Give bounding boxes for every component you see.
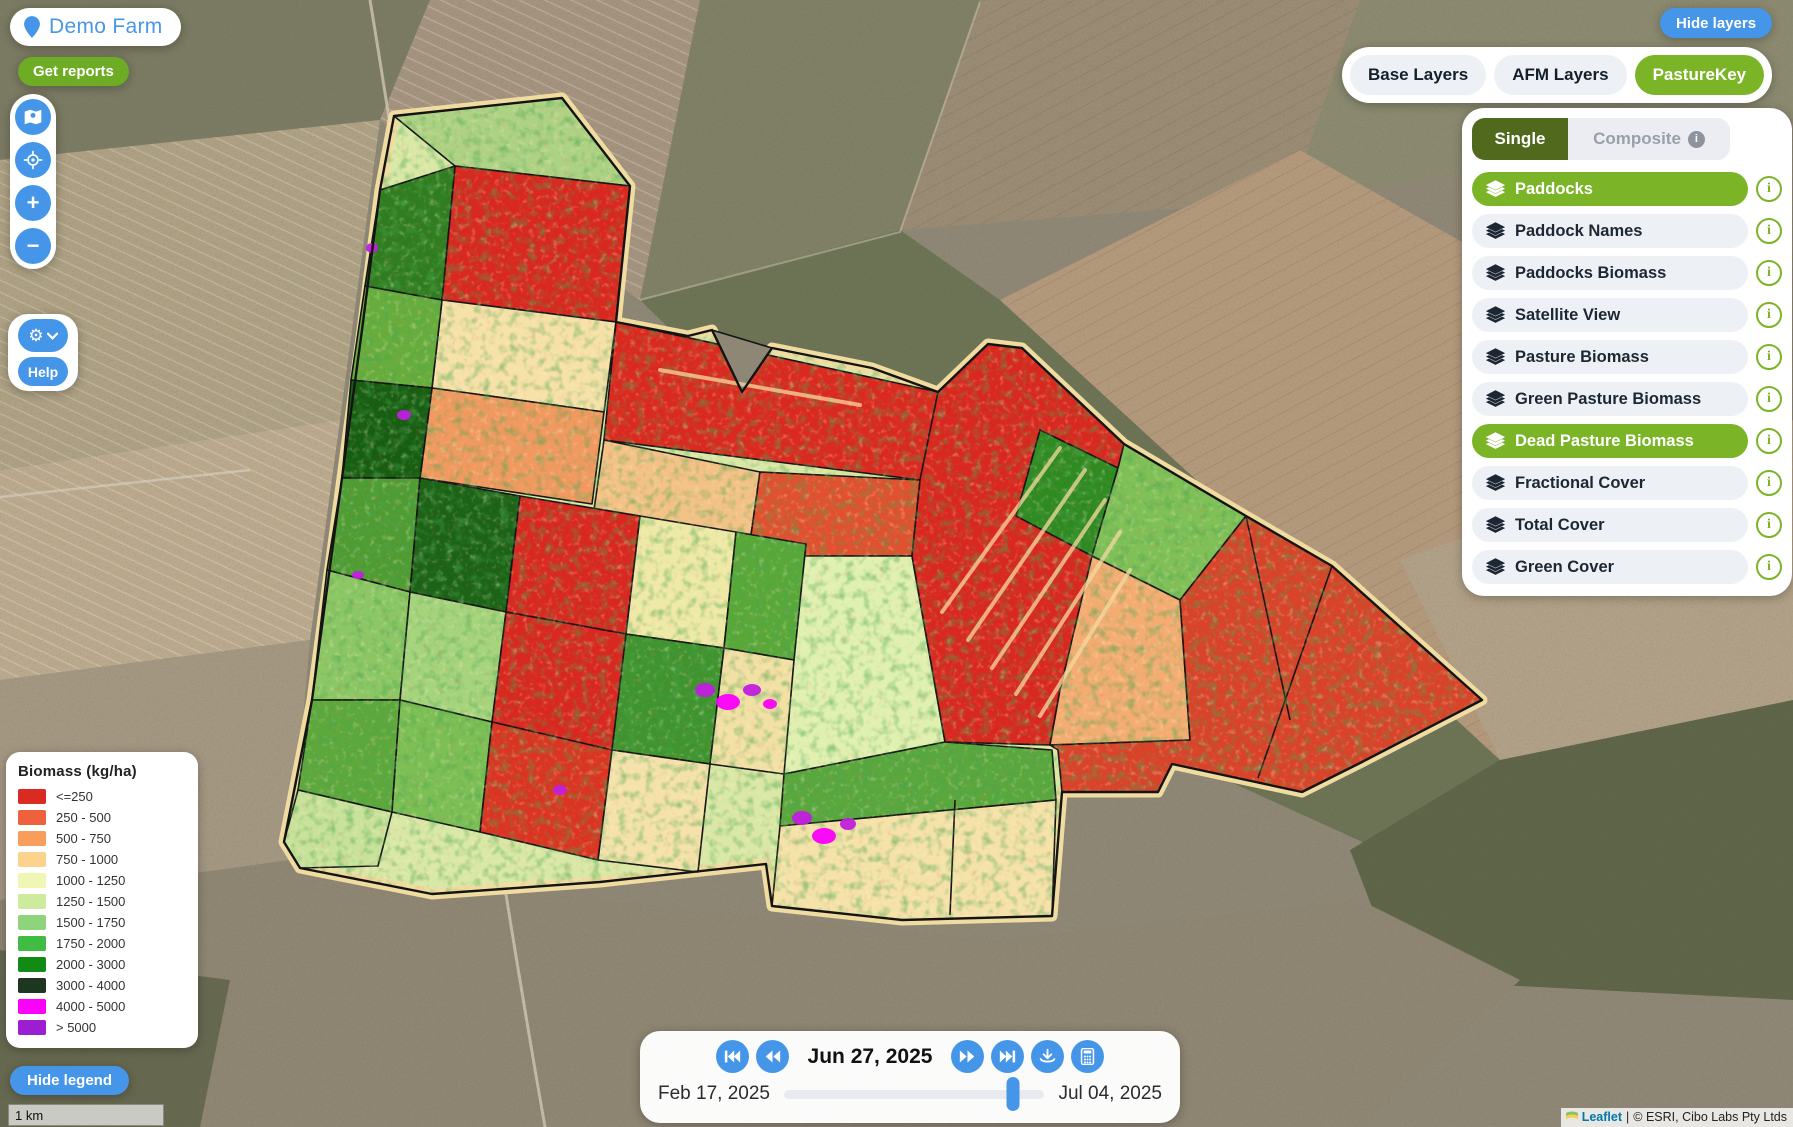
layer-tab[interactable]: PastureKey — [1635, 55, 1765, 95]
layers-icon — [1485, 180, 1506, 198]
farm-selector[interactable]: Demo Farm — [10, 8, 181, 46]
legend-row: 1500 - 1750 — [18, 912, 186, 933]
legend-label: 250 - 500 — [56, 810, 111, 825]
layer-row: Green Cover i — [1472, 550, 1782, 584]
layer-label: Total Cover — [1515, 516, 1605, 535]
map-icon — [23, 107, 43, 127]
legend-label: <=250 — [56, 789, 93, 804]
legend-label: 750 - 1000 — [56, 852, 118, 867]
date-slider-thumb[interactable] — [1007, 1077, 1020, 1111]
hide-legend-button[interactable]: Hide legend — [10, 1066, 129, 1095]
tab-label: AFM Layers — [1512, 65, 1608, 85]
leaflet-link[interactable]: Leaflet — [1582, 1110, 1622, 1124]
layer-row: Paddock Names i — [1472, 214, 1782, 248]
layer-item[interactable]: Paddocks Biomass — [1472, 256, 1748, 290]
chevron-down-icon — [47, 332, 58, 340]
step-forward-button[interactable] — [951, 1040, 984, 1073]
help-button[interactable]: Help — [18, 357, 68, 386]
timeline-controls: Jun 27, 2025 — [658, 1040, 1162, 1073]
crosshair-icon — [23, 150, 43, 170]
layer-info-icon[interactable]: i — [1756, 554, 1782, 580]
mode-single-label: Single — [1494, 129, 1545, 149]
legend-row: 4000 - 5000 — [18, 996, 186, 1017]
tab-label: PastureKey — [1653, 65, 1747, 85]
composite-info-icon[interactable]: i — [1688, 131, 1705, 148]
layers-icon — [1485, 516, 1506, 534]
layers-icon — [1485, 474, 1506, 492]
layers-icon — [1485, 432, 1506, 450]
layer-row: Total Cover i — [1472, 508, 1782, 542]
date-slider-track[interactable] — [784, 1090, 1044, 1099]
layer-item[interactable]: Fractional Cover — [1472, 466, 1748, 500]
legend-row: 3000 - 4000 — [18, 975, 186, 996]
legend-items: <=250 250 - 500 500 - 750 750 - 1000 — [18, 786, 186, 1038]
legend-label: 1000 - 1250 — [56, 873, 125, 888]
layer-info-icon[interactable]: i — [1756, 176, 1782, 202]
current-date: Jun 27, 2025 — [808, 1045, 933, 1069]
locate-button[interactable] — [15, 142, 51, 178]
legend-row: 1750 - 2000 — [18, 933, 186, 954]
layer-list: Paddocks i Paddock Names i — [1472, 172, 1782, 584]
legend-swatch — [18, 873, 46, 888]
layer-info-icon[interactable]: i — [1756, 386, 1782, 412]
layer-row: Satellite View i — [1472, 298, 1782, 332]
gear-icon: ⚙ — [28, 326, 43, 346]
mode-composite-label: Composite — [1593, 129, 1681, 149]
legend-swatch — [18, 1020, 46, 1035]
layer-info-icon[interactable]: i — [1756, 428, 1782, 454]
legend-swatch — [18, 999, 46, 1014]
layers-icon — [1485, 390, 1506, 408]
tab-label: Base Layers — [1368, 65, 1468, 85]
legend-label: 1750 - 2000 — [56, 936, 125, 951]
rewind-icon — [764, 1049, 781, 1064]
attribution-separator: | — [1626, 1110, 1629, 1124]
legend-swatch — [18, 957, 46, 972]
legend-row: 250 - 500 — [18, 807, 186, 828]
layer-label: Pasture Biomass — [1515, 348, 1649, 367]
legend-label: 2000 - 3000 — [56, 957, 125, 972]
map-attribution: Leaflet | © ESRI, Cibo Labs Pty Ltds — [1561, 1108, 1793, 1127]
fast-forward-icon — [959, 1049, 976, 1064]
mode-single[interactable]: Single — [1472, 118, 1568, 160]
layer-row: Pasture Biomass i — [1472, 340, 1782, 374]
layer-info-icon[interactable]: i — [1756, 260, 1782, 286]
leaflet-flag-icon — [1566, 1111, 1578, 1123]
legend-label: 1250 - 1500 — [56, 894, 125, 909]
basemap-button[interactable] — [15, 99, 51, 135]
legend-swatch — [18, 831, 46, 846]
layer-info-icon[interactable]: i — [1756, 218, 1782, 244]
skip-to-end-button[interactable] — [991, 1040, 1024, 1073]
layer-info-icon[interactable]: i — [1756, 344, 1782, 370]
legend-row: 1250 - 1500 — [18, 891, 186, 912]
layer-row: Paddocks i — [1472, 172, 1782, 206]
legend-swatch — [18, 810, 46, 825]
legend-row: 1000 - 1250 — [18, 870, 186, 891]
layer-item[interactable]: Total Cover — [1472, 508, 1748, 542]
layers-icon — [1485, 348, 1506, 366]
legend-row: 500 - 750 — [18, 828, 186, 849]
layer-label: Fractional Cover — [1515, 474, 1645, 493]
layer-row: Fractional Cover i — [1472, 466, 1782, 500]
range-end-date: Jul 04, 2025 — [1058, 1083, 1162, 1105]
layers-icon — [1485, 264, 1506, 282]
zoom-in-button[interactable]: + — [15, 185, 51, 221]
layer-label: Satellite View — [1515, 306, 1620, 325]
mode-toggle: Single Composite i — [1472, 118, 1730, 160]
layer-row: Paddocks Biomass i — [1472, 256, 1782, 290]
download-button[interactable] — [1031, 1040, 1064, 1073]
legend-label: 4000 - 5000 — [56, 999, 125, 1014]
legend-swatch — [18, 936, 46, 951]
biomass-legend: Biomass (kg/ha) <=250 250 - 500 500 - 75… — [6, 752, 198, 1048]
get-reports-button[interactable]: Get reports — [18, 57, 129, 86]
zoom-out-button[interactable]: − — [15, 228, 51, 264]
timeline-panel: Jun 27, 2025 — [640, 1031, 1180, 1123]
skip-end-icon — [999, 1049, 1016, 1064]
legend-swatch — [18, 894, 46, 909]
layer-info-icon[interactable]: i — [1756, 512, 1782, 538]
layer-tab[interactable]: AFM Layers — [1494, 55, 1626, 95]
hide-layers-button[interactable]: Hide layers — [1660, 8, 1772, 38]
legend-row: > 5000 — [18, 1017, 186, 1038]
layer-row: Dead Pasture Biomass i — [1472, 424, 1782, 458]
layer-item[interactable]: Green Pasture Biomass — [1472, 382, 1748, 416]
legend-swatch — [18, 789, 46, 804]
layer-label: Paddocks — [1515, 180, 1593, 199]
layers-icon — [1485, 558, 1506, 576]
layers-icon — [1485, 222, 1506, 240]
settings-stack: ⚙ Help — [8, 314, 78, 391]
settings-button[interactable]: ⚙ — [18, 319, 68, 352]
legend-title: Biomass (kg/ha) — [18, 763, 186, 780]
layers-icon — [1485, 306, 1506, 324]
mode-composite[interactable]: Composite i — [1568, 118, 1730, 160]
layer-item[interactable]: Satellite View — [1472, 298, 1748, 332]
map-control-stack: + − — [10, 94, 56, 269]
skip-start-icon — [724, 1049, 741, 1064]
location-pin-icon — [22, 15, 42, 39]
layer-item[interactable]: Paddock Names — [1472, 214, 1748, 248]
layer-tabbar: Base Layers AFM Layers PastureKey — [1342, 47, 1772, 103]
calculator-icon — [1080, 1048, 1095, 1065]
step-back-button[interactable] — [756, 1040, 789, 1073]
legend-swatch — [18, 978, 46, 993]
range-start-date: Feb 17, 2025 — [658, 1083, 770, 1105]
timeline-range: Feb 17, 2025 Jul 04, 2025 — [658, 1083, 1162, 1105]
layer-item[interactable]: Dead Pasture Biomass — [1472, 424, 1748, 458]
layer-label: Green Pasture Biomass — [1515, 390, 1701, 409]
layer-label: Green Cover — [1515, 558, 1614, 577]
layer-row: Green Pasture Biomass i — [1472, 382, 1782, 416]
layer-tab[interactable]: Base Layers — [1350, 55, 1486, 95]
legend-label: 1500 - 1750 — [56, 915, 125, 930]
layer-label: Paddocks Biomass — [1515, 264, 1666, 283]
skip-to-start-button[interactable] — [716, 1040, 749, 1073]
layer-item[interactable]: Green Cover — [1472, 550, 1748, 584]
layer-item[interactable]: Pasture Biomass — [1472, 340, 1748, 374]
attribution-text: © ESRI, Cibo Labs Pty Ltds — [1633, 1110, 1787, 1124]
legend-row: 750 - 1000 — [18, 849, 186, 870]
legend-label: 500 - 750 — [56, 831, 111, 846]
download-icon — [1039, 1048, 1056, 1065]
layer-label: Paddock Names — [1515, 222, 1642, 241]
legend-row: 2000 - 3000 — [18, 954, 186, 975]
layers-panel: Single Composite i Paddocks — [1462, 108, 1792, 596]
legend-label: > 5000 — [56, 1020, 96, 1035]
layer-item[interactable]: Paddocks — [1472, 172, 1748, 206]
legend-row: <=250 — [18, 786, 186, 807]
legend-swatch — [18, 852, 46, 867]
legend-swatch — [18, 915, 46, 930]
legend-label: 3000 - 4000 — [56, 978, 125, 993]
farm-name: Demo Farm — [49, 15, 163, 39]
layer-label: Dead Pasture Biomass — [1515, 432, 1694, 451]
layer-info-icon[interactable]: i — [1756, 470, 1782, 496]
scale-bar: 1 km — [8, 1104, 164, 1126]
layer-info-icon[interactable]: i — [1756, 302, 1782, 328]
pasture-map-app: Demo Farm Get reports + − ⚙ Help — [0, 0, 1793, 1127]
calculator-button[interactable] — [1071, 1040, 1104, 1073]
